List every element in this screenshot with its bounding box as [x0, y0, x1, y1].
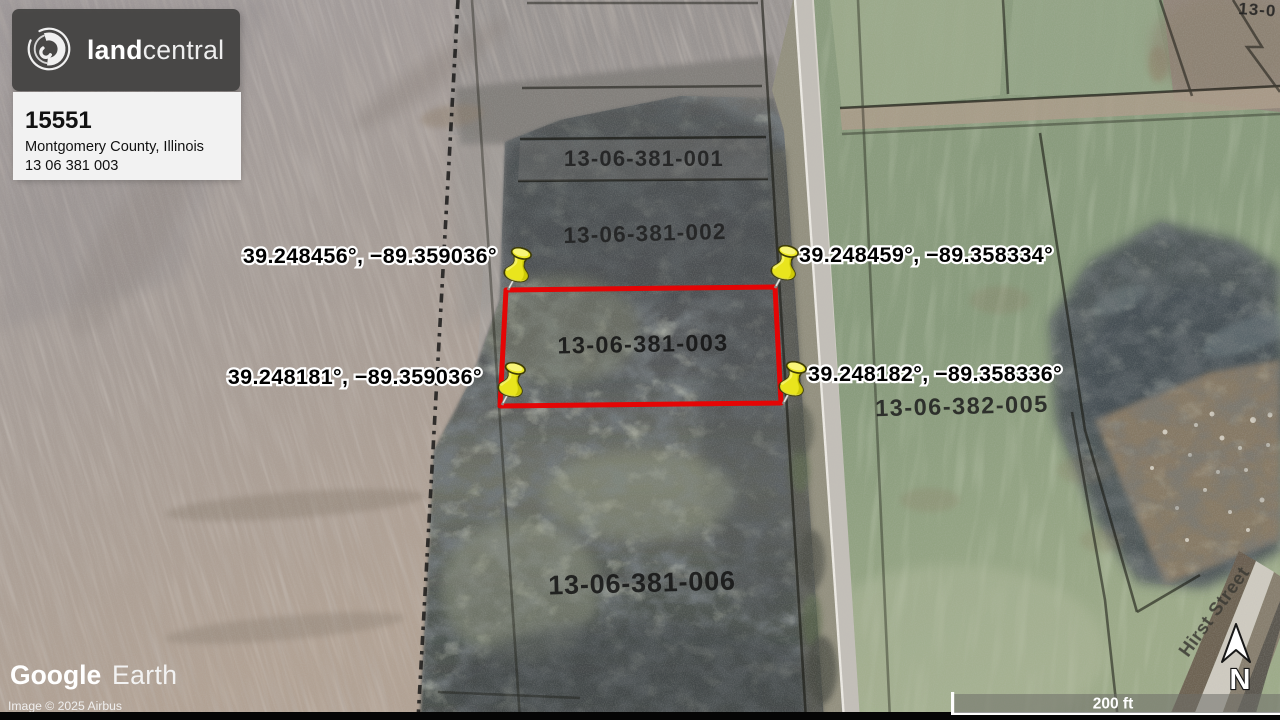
svg-text:N: N	[1230, 664, 1251, 696]
svg-text:15551: 15551	[25, 107, 92, 134]
svg-text:13-06-381-006: 13-06-381-006	[548, 566, 736, 601]
svg-text:13-06-381-003: 13-06-381-003	[557, 330, 729, 359]
svg-text:39.248182°, −89.358336°: 39.248182°, −89.358336°	[808, 362, 1062, 386]
svg-text:13-0: 13-0	[1238, 0, 1277, 21]
svg-text:200 ft: 200 ft	[1093, 696, 1134, 713]
svg-text:Montgomery County, Illinois: Montgomery County, Illinois	[25, 139, 204, 155]
svg-text:13-06-381-002: 13-06-381-002	[563, 219, 727, 248]
svg-text:13-06-382-005: 13-06-382-005	[875, 391, 1049, 422]
svg-text:39.248456°, −89.359036°: 39.248456°, −89.359036°	[243, 244, 497, 268]
svg-text:39.248459°, −89.358334°: 39.248459°, −89.358334°	[799, 243, 1053, 267]
svg-text:13-06-381-001: 13-06-381-001	[564, 146, 724, 171]
svg-text:landcentral: landcentral	[87, 35, 224, 65]
svg-text:39.248181°, −89.359036°: 39.248181°, −89.359036°	[228, 365, 482, 389]
svg-text:Image © 2025 Airbus: Image © 2025 Airbus	[8, 699, 122, 713]
svg-text:13 06 381 003: 13 06 381 003	[25, 158, 118, 174]
svg-text:Google Earth: Google Earth	[10, 660, 177, 690]
